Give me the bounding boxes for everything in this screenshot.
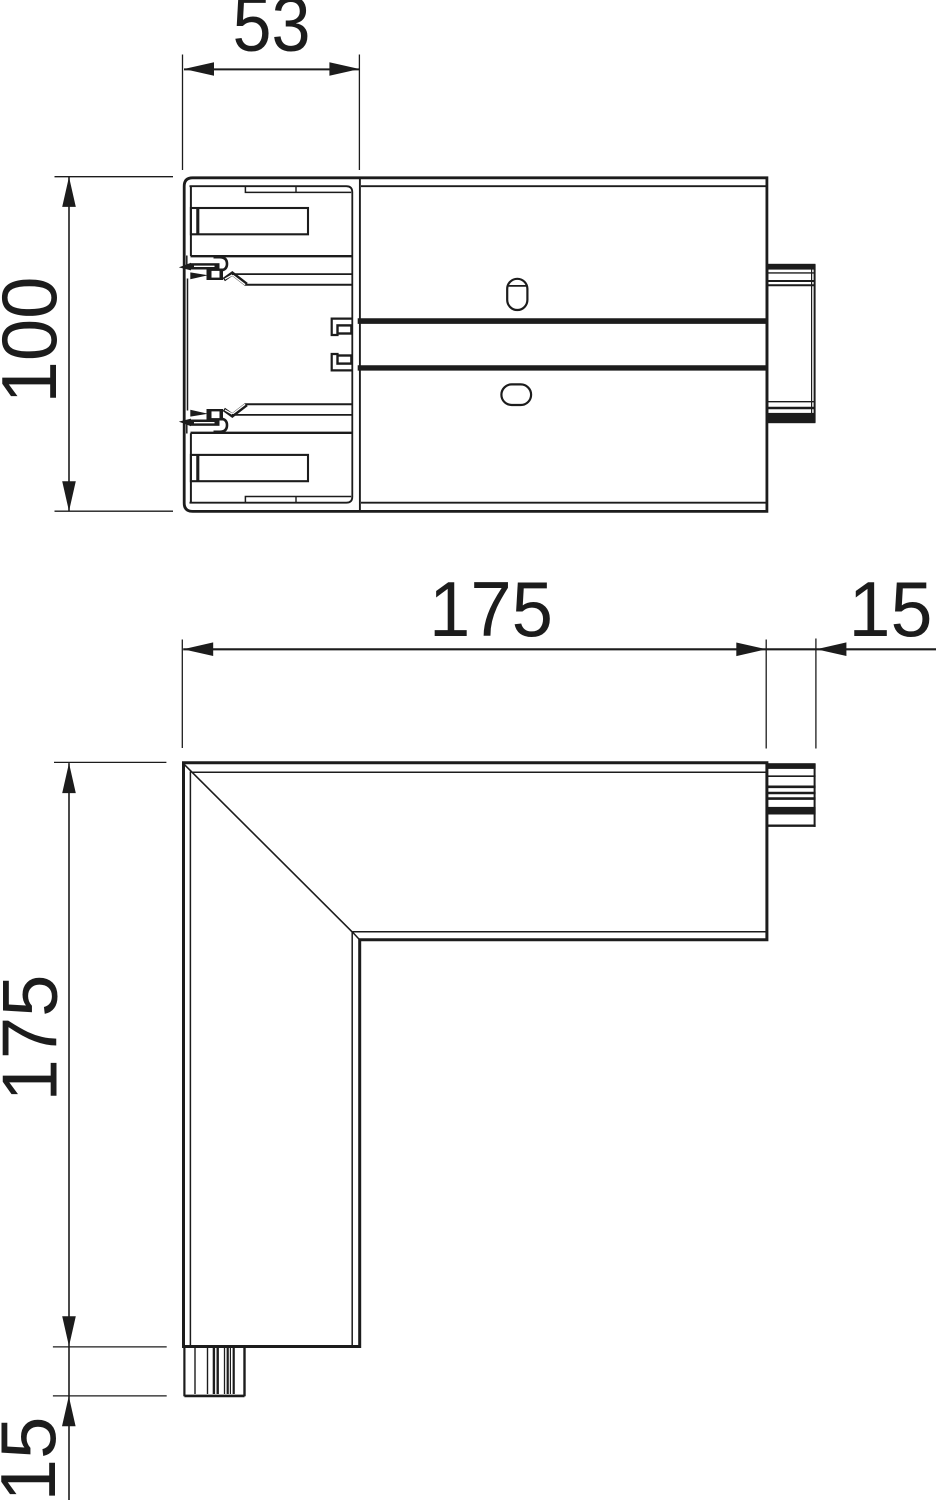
- svg-text:53: 53: [233, 0, 311, 68]
- svg-text:15: 15: [849, 565, 933, 653]
- svg-text:15: 15: [0, 1417, 72, 1500]
- svg-text:100: 100: [0, 277, 73, 404]
- svg-text:175: 175: [0, 975, 74, 1102]
- svg-text:175: 175: [429, 565, 553, 653]
